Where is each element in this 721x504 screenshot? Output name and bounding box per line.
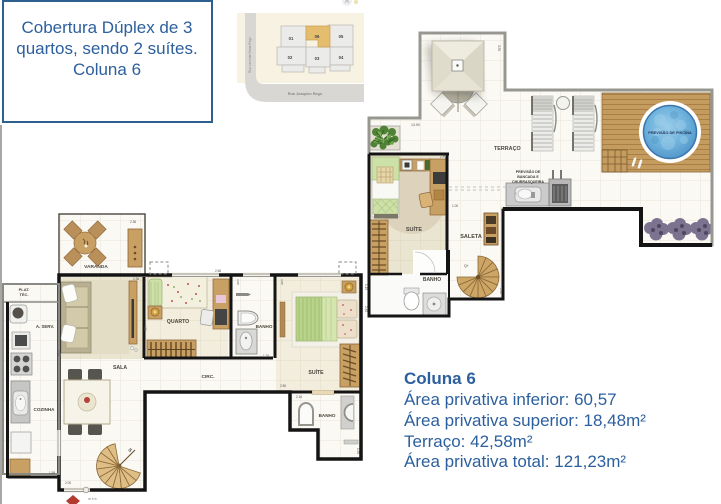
svg-text:01: 01 bbox=[289, 36, 294, 41]
svg-text:Coluna 6: Coluna 6 bbox=[404, 369, 476, 388]
svg-text:BANHO: BANHO bbox=[256, 324, 273, 329]
svg-text:Rua Lacerda Viana Rego: Rua Lacerda Viana Rego bbox=[248, 37, 252, 73]
svg-text:TERRAÇO: TERRAÇO bbox=[494, 146, 521, 152]
svg-text:2.36: 2.36 bbox=[133, 277, 139, 281]
svg-text:03: 03 bbox=[315, 56, 320, 61]
svg-text:2.40: 2.40 bbox=[440, 155, 446, 159]
svg-text:2.46: 2.46 bbox=[499, 288, 503, 294]
svg-text:SALA: SALA bbox=[113, 365, 127, 371]
svg-text:BANCADA E: BANCADA E bbox=[517, 175, 539, 179]
svg-text:2.36: 2.36 bbox=[130, 220, 136, 224]
svg-text:2.50: 2.50 bbox=[280, 384, 286, 388]
svg-text:02: 02 bbox=[288, 55, 293, 60]
svg-text:2.16: 2.16 bbox=[296, 395, 302, 399]
svg-text:04: 04 bbox=[339, 55, 344, 60]
svg-text:1.15: 1.15 bbox=[364, 284, 368, 290]
svg-text:Rua Joaquim Rego: Rua Joaquim Rego bbox=[288, 92, 323, 96]
svg-text:A. SERV.: A. SERV. bbox=[36, 324, 54, 329]
svg-text:Cobertura Dúplex de 3: Cobertura Dúplex de 3 bbox=[21, 18, 192, 37]
svg-text:3.50: 3.50 bbox=[497, 45, 501, 51]
svg-text:Q+: Q+ bbox=[464, 264, 469, 268]
svg-text:SALETA: SALETA bbox=[460, 234, 482, 240]
svg-text:2.40: 2.40 bbox=[364, 306, 368, 312]
svg-text:1.00: 1.00 bbox=[452, 204, 458, 208]
svg-text:BANHO: BANHO bbox=[423, 277, 441, 283]
svg-text:4.13: 4.13 bbox=[57, 350, 61, 356]
svg-text:3.05: 3.05 bbox=[280, 279, 284, 285]
svg-text:2.66: 2.66 bbox=[215, 269, 221, 273]
svg-text:VARANDA: VARANDA bbox=[84, 264, 108, 270]
svg-text:06: 06 bbox=[315, 34, 320, 39]
svg-text:1.20: 1.20 bbox=[263, 354, 269, 358]
svg-text:BANHO: BANHO bbox=[319, 413, 336, 418]
svg-text:TÉC.: TÉC. bbox=[19, 292, 28, 297]
svg-text:SUÍTE: SUÍTE bbox=[308, 368, 324, 376]
svg-text:PREVISÃO DE PISCINA: PREVISÃO DE PISCINA bbox=[648, 130, 692, 135]
svg-text:05: 05 bbox=[339, 34, 344, 39]
svg-text:3.08: 3.08 bbox=[236, 279, 240, 285]
svg-text:Área privativa inferior: 60,57: Área privativa inferior: 60,57 bbox=[404, 390, 617, 409]
svg-text:m h b: m h b bbox=[88, 497, 97, 501]
svg-text:PREVISÃO DE: PREVISÃO DE bbox=[516, 169, 541, 174]
svg-text:Coluna 6: Coluna 6 bbox=[73, 60, 141, 79]
svg-text:Área privativa superior: 18,48: Área privativa superior: 18,48m² bbox=[404, 411, 646, 430]
svg-text:COZINHA: COZINHA bbox=[34, 407, 56, 412]
svg-text:SUÍTE: SUÍTE bbox=[406, 225, 423, 233]
svg-text:quartos, sendo 2 suítes.: quartos, sendo 2 suítes. bbox=[16, 39, 197, 58]
svg-text:CIRC.: CIRC. bbox=[201, 374, 214, 380]
svg-text:13.90: 13.90 bbox=[411, 123, 420, 127]
svg-text:QUARTO: QUARTO bbox=[167, 319, 189, 325]
svg-text:2.00: 2.00 bbox=[65, 481, 71, 485]
svg-text:Área privativa total: 121,23m²: Área privativa total: 121,23m² bbox=[404, 452, 626, 471]
svg-text:1.59: 1.59 bbox=[49, 471, 55, 475]
svg-text:4.19: 4.19 bbox=[143, 325, 147, 331]
svg-text:CHURRASQUEIRA: CHURRASQUEIRA bbox=[512, 180, 544, 184]
svg-text:Terraço: 42,58m²: Terraço: 42,58m² bbox=[404, 432, 533, 451]
